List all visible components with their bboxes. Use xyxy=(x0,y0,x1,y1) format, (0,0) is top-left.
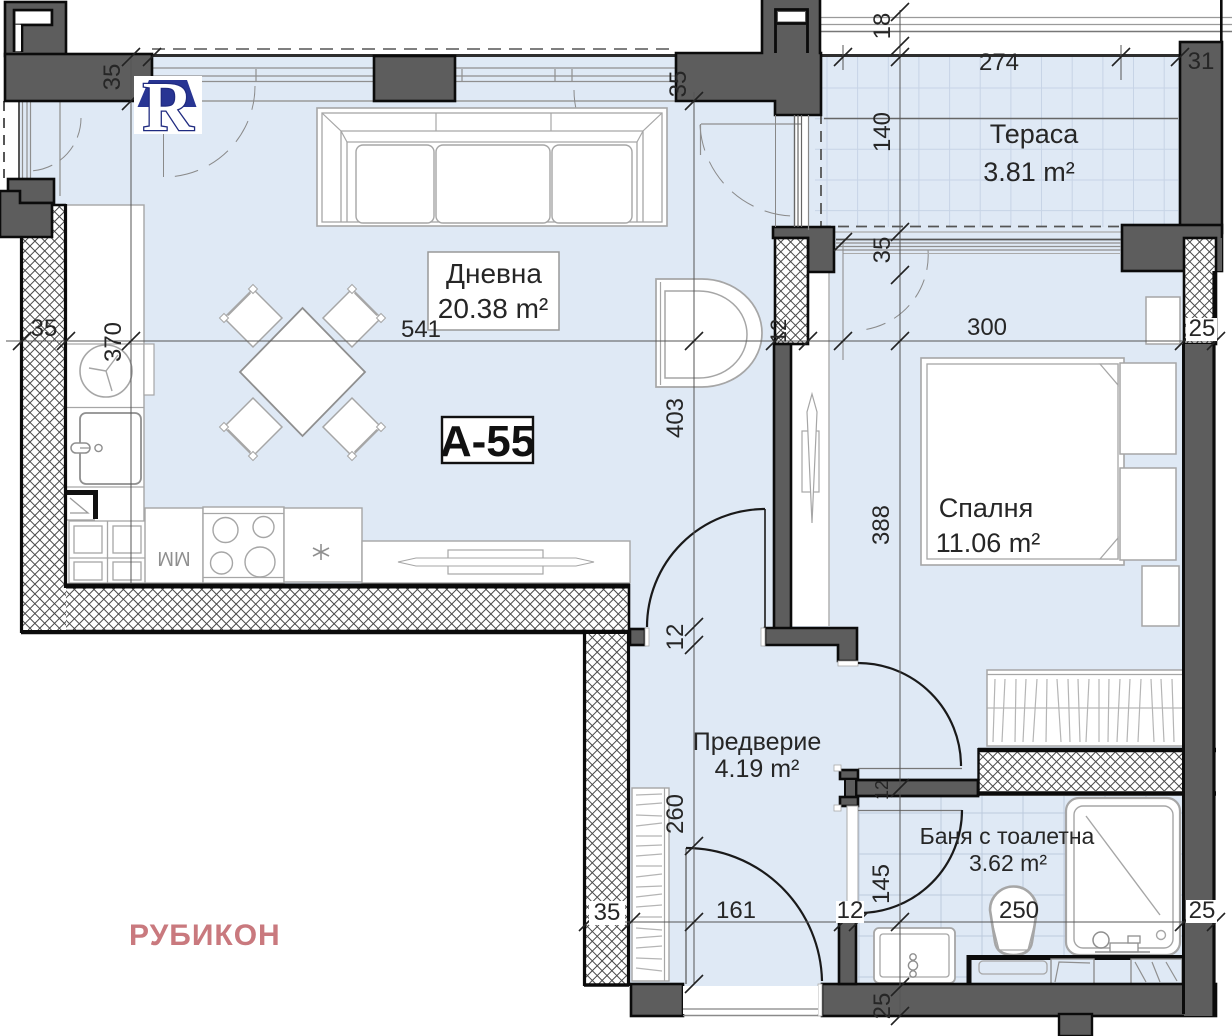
svg-text:Баня с тоалетна: Баня с тоалетна xyxy=(920,823,1095,849)
svg-text:12: 12 xyxy=(766,319,791,343)
svg-text:35: 35 xyxy=(869,237,896,264)
svg-text:11.06 m²: 11.06 m² xyxy=(936,528,1041,558)
svg-text:Предверие: Предверие xyxy=(693,728,822,756)
svg-text:35: 35 xyxy=(31,315,58,342)
svg-text:388: 388 xyxy=(868,505,895,545)
svg-text:35: 35 xyxy=(594,899,621,926)
svg-text:18: 18 xyxy=(869,13,896,40)
svg-text:140: 140 xyxy=(869,112,896,152)
svg-text:250: 250 xyxy=(999,897,1039,924)
svg-text:РУБИКОН: РУБИКОН xyxy=(129,919,281,952)
svg-text:20.38 m²: 20.38 m² xyxy=(438,293,549,324)
svg-text:А-55: А-55 xyxy=(440,417,535,466)
svg-text:31: 31 xyxy=(1188,48,1215,75)
svg-text:Дневна: Дневна xyxy=(446,258,542,289)
svg-text:161: 161 xyxy=(716,897,756,924)
svg-text:25: 25 xyxy=(1189,897,1216,924)
svg-text:12: 12 xyxy=(837,897,864,924)
svg-text:12: 12 xyxy=(662,624,689,651)
svg-text:145: 145 xyxy=(868,864,895,904)
svg-text:260: 260 xyxy=(662,794,689,834)
svg-text:541: 541 xyxy=(401,316,441,343)
svg-text:300: 300 xyxy=(967,314,1007,341)
svg-text:370: 370 xyxy=(100,322,127,362)
svg-text:4.19 m²: 4.19 m² xyxy=(715,755,800,783)
svg-text:35: 35 xyxy=(665,71,692,98)
svg-text:3.62 m²: 3.62 m² xyxy=(969,850,1047,876)
svg-text:Тераса: Тераса xyxy=(990,119,1080,149)
svg-text:403: 403 xyxy=(662,398,689,438)
svg-text:12: 12 xyxy=(872,780,892,800)
svg-text:35: 35 xyxy=(99,64,126,91)
svg-text:R: R xyxy=(143,69,195,146)
svg-text:25: 25 xyxy=(1189,315,1216,342)
svg-text:Спалня: Спалня xyxy=(939,493,1033,523)
svg-text:274: 274 xyxy=(979,49,1019,76)
svg-text:3.81 m²: 3.81 m² xyxy=(983,157,1075,187)
svg-text:MM: MM xyxy=(157,547,190,569)
svg-text:25: 25 xyxy=(869,993,896,1020)
